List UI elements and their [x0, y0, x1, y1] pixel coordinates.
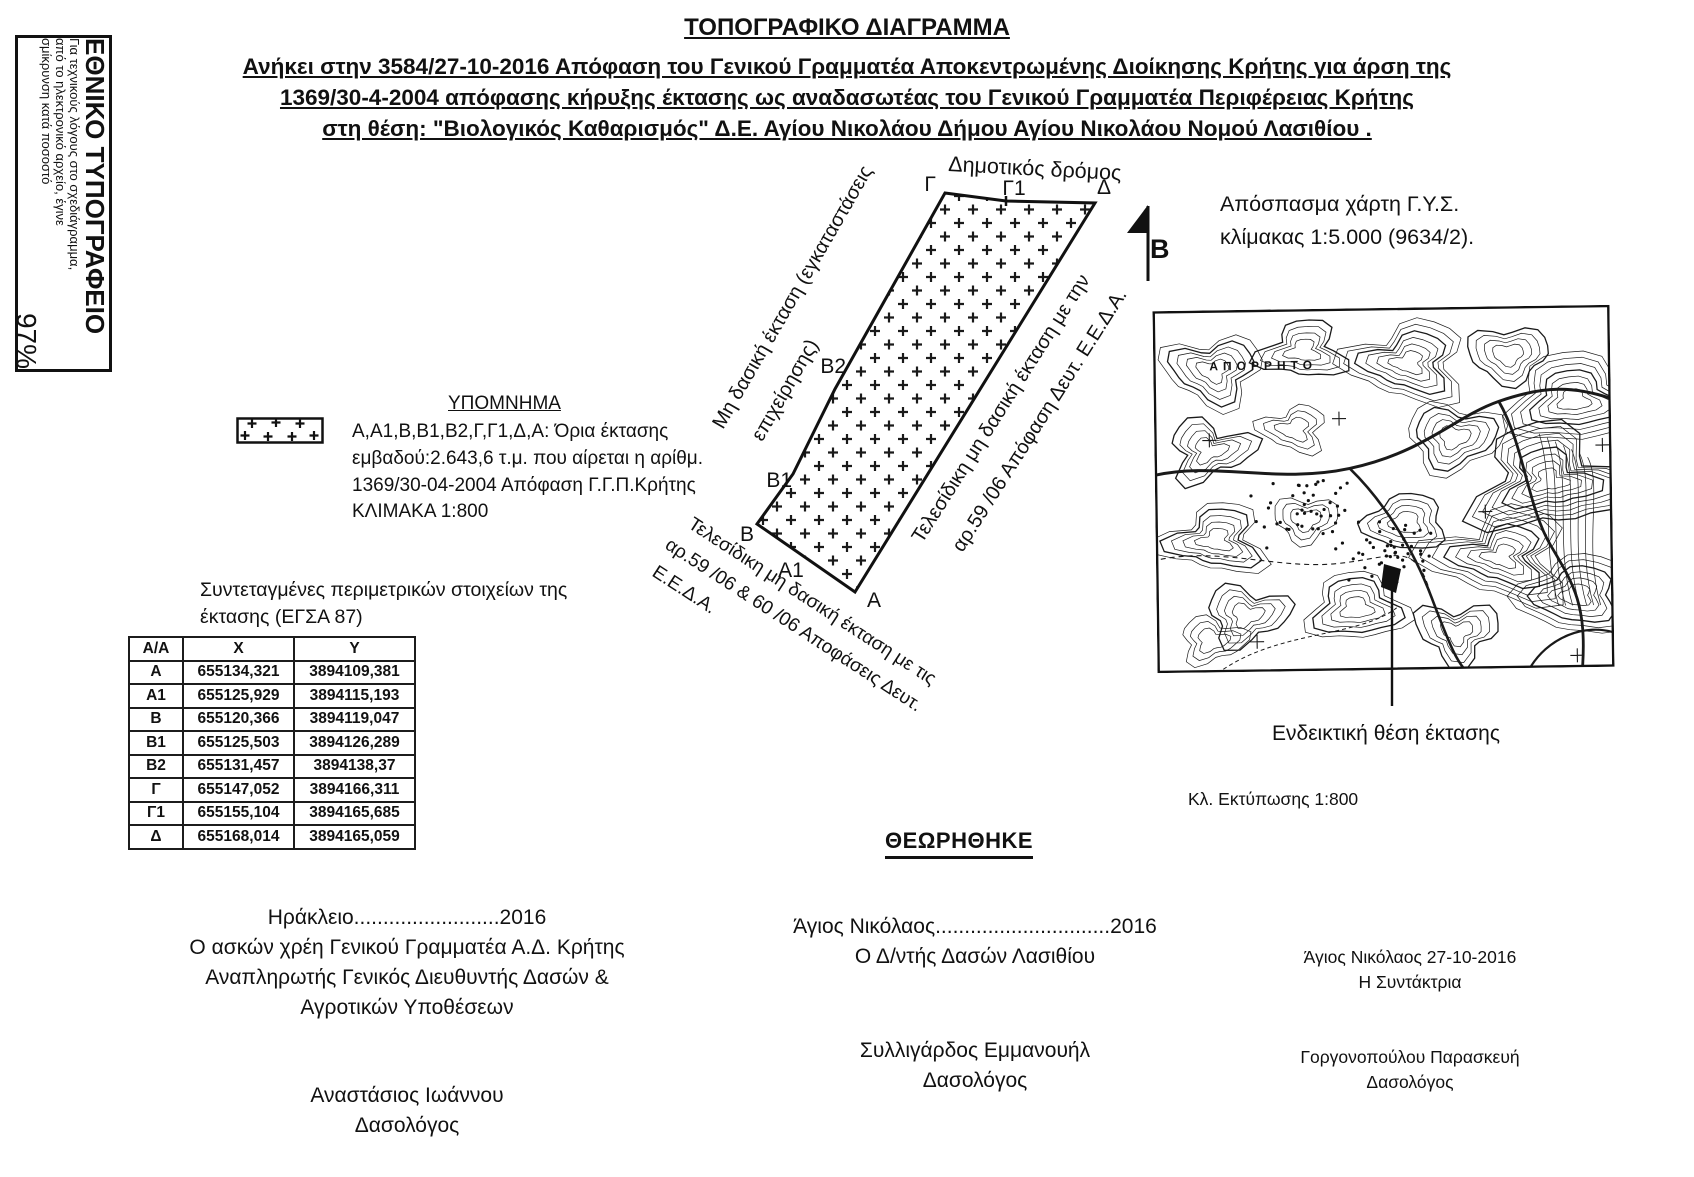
vertex-label-g1: Γ1: [1002, 177, 1025, 200]
signer-role: Δασολόγος: [745, 1066, 1205, 1096]
vertex-label-g: Γ: [924, 173, 936, 196]
vertex-label-b2: Β2: [820, 355, 846, 378]
signature-block-right: Άγιος Νικόλαος 27-10-2016 Η Συντάκτρια Γ…: [1245, 945, 1575, 1095]
signature-block-left: Ηράκλειο.........................2016 Ο …: [172, 903, 642, 1141]
signer-role: Δασολόγος: [1245, 1070, 1575, 1095]
signer-name: Γοργονοπούλου Παρασκευή: [1245, 1045, 1575, 1070]
road-label: Δημοτικός δρόμος: [948, 152, 1122, 185]
signer-name: Συλλιγάρδος Εμμανουήλ: [745, 1036, 1205, 1066]
vertex-label-a: Α: [867, 589, 881, 612]
reviewed-stamp: ΘΕΩΡΗΘΗΚΕ: [885, 828, 1033, 859]
north-label: Β: [1150, 234, 1170, 264]
location-marker-icon: [1381, 564, 1401, 706]
vertex-label-b1: Β1: [766, 469, 792, 492]
signer-role: Δασολόγος: [172, 1111, 642, 1141]
topographic-diagram-page: ΤΟΠΟΓΡΑΦΙΚΟ ΔΙΑΓΡΑΜΜΑ Ανήκει στην 3584/2…: [0, 0, 1694, 1177]
north-arrow-icon: Β: [1127, 205, 1170, 281]
signer-name: Αναστάσιος Ιωάννου: [172, 1081, 642, 1111]
signature-block-middle: Άγιος Νικόλαος..........................…: [745, 912, 1205, 1095]
